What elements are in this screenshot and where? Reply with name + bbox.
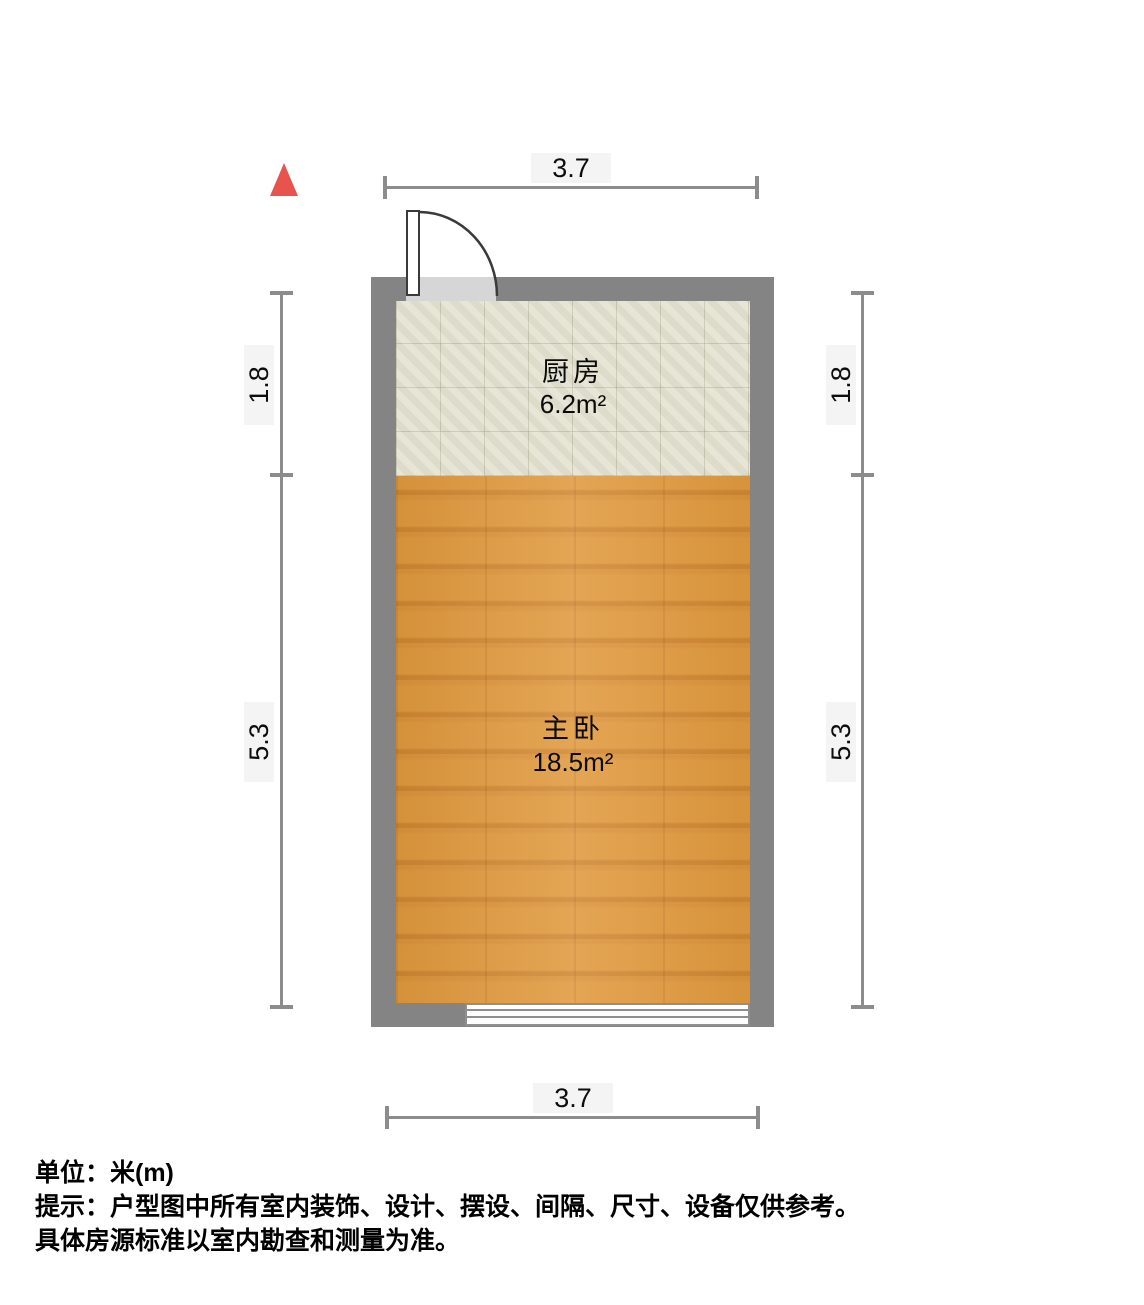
kitchen-name-label: 厨房 <box>396 357 750 387</box>
window-pane-line <box>467 1016 748 1018</box>
dimension-right-label-upper: 1.8 <box>826 345 856 425</box>
floorplan-canvas: 3.7 3.7 1.8 5.3 1.8 5.3 厨房 6.2m² 主卧 18.5… <box>0 0 1144 1305</box>
dimension-top-line <box>385 186 757 189</box>
dimension-right-tick-mid <box>851 473 874 477</box>
dimension-right-tick-bottom <box>851 1005 874 1009</box>
footer-unit-line: 单位：米(m) <box>35 1156 860 1190</box>
footer-tip-line2: 具体房源标准以室内勘查和测量为准。 <box>35 1224 860 1258</box>
bedroom-area-label: 18.5m² <box>396 748 750 776</box>
dimension-left-label-lower: 5.3 <box>244 702 274 782</box>
door-leaf <box>406 210 420 296</box>
window-pane-line <box>467 1009 748 1011</box>
dimension-bottom-line <box>387 1116 758 1119</box>
dimension-right-line <box>861 292 864 1009</box>
dimension-top-tick-left <box>383 176 387 199</box>
footer-tip-line1: 提示：户型图中所有室内装饰、设计、摆设、间隔、尺寸、设备仅供参考。 <box>35 1190 860 1224</box>
dimension-left-tick-bottom <box>270 1005 293 1009</box>
footer-notes: 单位：米(m) 提示：户型图中所有室内装饰、设计、摆设、间隔、尺寸、设备仅供参考… <box>35 1156 860 1258</box>
dimension-left-tick-mid <box>270 473 293 477</box>
door-swing-arc <box>406 208 502 300</box>
dimension-top-label: 3.7 <box>531 153 611 183</box>
dimension-bottom-tick-right <box>756 1106 760 1129</box>
dimension-left-label-upper: 1.8 <box>244 345 274 425</box>
dimension-left-line <box>280 292 283 1009</box>
north-arrow-icon <box>270 163 298 196</box>
bedroom-name-label: 主卧 <box>396 714 750 744</box>
dimension-top-tick-right <box>755 176 759 199</box>
dimension-left-tick-top <box>270 291 293 295</box>
window <box>465 1003 750 1026</box>
kitchen-area-label: 6.2m² <box>396 390 750 418</box>
dimension-right-label-lower: 5.3 <box>826 702 856 782</box>
dimension-bottom-tick-left <box>385 1106 389 1129</box>
dimension-bottom-label: 3.7 <box>533 1083 613 1113</box>
dimension-right-tick-top <box>851 291 874 295</box>
